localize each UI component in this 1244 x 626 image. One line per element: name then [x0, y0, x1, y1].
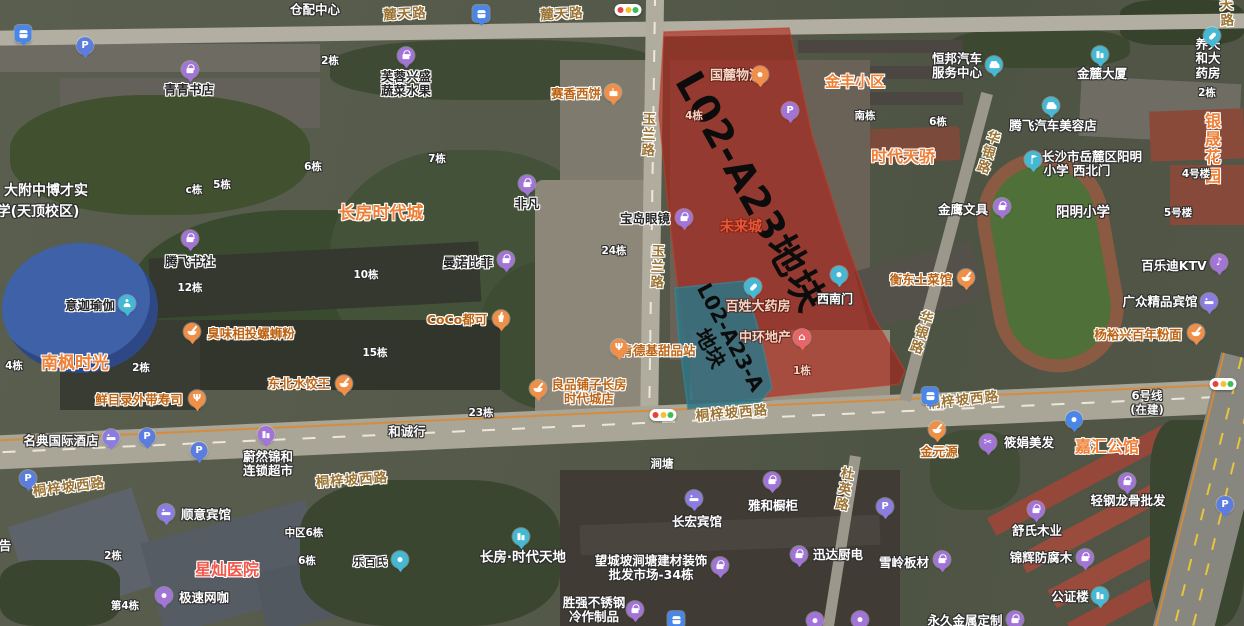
poi-label[interactable]: 望城坡涧塘建材装饰 批发市场-34栋 — [595, 554, 708, 583]
car-service-icon-glyph — [986, 56, 1003, 73]
building-icon-glyph — [1092, 587, 1109, 604]
ktv-mic-icon[interactable]: ♪ — [1211, 254, 1228, 271]
bakery-icon-glyph — [605, 84, 622, 101]
logistics-dot-icon[interactable] — [752, 66, 769, 83]
poi-label[interactable]: 肯德基甜品站 — [620, 344, 695, 358]
shopping-bag-icon[interactable] — [627, 601, 644, 618]
building-number-label: 2栋 — [321, 56, 339, 68]
poi-label[interactable]: 衡东土菜馆 — [890, 273, 953, 287]
poi-label[interactable]: 金元源 — [920, 445, 958, 459]
drink-dot-icon-glyph — [392, 551, 409, 568]
poi-label[interactable]: 筱娟美发 — [1004, 436, 1054, 450]
shopping-bag-icon[interactable] — [182, 230, 199, 247]
shopping-bag-icon[interactable] — [519, 175, 536, 192]
shopping-bag-icon[interactable] — [1119, 473, 1136, 490]
poi-label[interactable]: 杨裕兴百年粉面 — [1094, 328, 1182, 342]
road-label: 玉兰路 — [638, 111, 655, 158]
building-number-label: 5栋 — [213, 180, 231, 192]
poi-label[interactable]: 和诚行 — [388, 425, 426, 439]
building-number-label: c栋 — [186, 185, 203, 197]
bus-stop-icon-glyph — [15, 25, 32, 42]
poi-dot-icon-glyph — [807, 612, 824, 626]
restaurant-icon[interactable]: Ψ — [189, 390, 206, 407]
supermarket-icon[interactable] — [258, 426, 275, 443]
hospital-label[interactable]: 星灿医院 — [195, 561, 259, 579]
poi-label[interactable]: 小学 西北门 — [1044, 164, 1111, 178]
restaurant-icon[interactable] — [336, 375, 353, 392]
shopping-bag-icon-glyph — [712, 557, 729, 574]
road-label: 麓天路 — [1217, 0, 1236, 29]
bus-stop-icon-glyph — [922, 387, 939, 404]
supermarket-icon-glyph — [258, 426, 275, 443]
parking-icon-glyph: P — [139, 428, 156, 445]
hotel-bed-icon[interactable] — [686, 490, 703, 507]
shopping-bag-icon[interactable] — [182, 61, 199, 78]
shopping-bag-icon-glyph — [934, 551, 951, 568]
shopping-bag-icon-glyph — [676, 209, 693, 226]
parking-icon[interactable]: P — [191, 442, 208, 459]
poi-label[interactable]: 雅和橱柜 — [748, 499, 798, 513]
poi-label[interactable]: 百乐迪KTV — [1141, 259, 1206, 273]
pharmacy-pill-icon-glyph — [1204, 27, 1221, 44]
bus-stop-icon-glyph — [473, 5, 490, 22]
building-number-label: 中区6栋 — [285, 528, 324, 540]
estate-house-icon-glyph: ⌂ — [794, 329, 811, 346]
building-number-label: 4栋 — [5, 361, 23, 373]
parking-icon[interactable]: P — [877, 498, 894, 515]
shopping-bag-icon[interactable] — [1007, 611, 1024, 626]
building-number-label: 第4栋 — [111, 601, 139, 613]
restaurant-icon-glyph — [929, 421, 946, 438]
road-label: 玉兰路 — [647, 243, 664, 290]
shopping-bag-icon-glyph — [791, 546, 808, 563]
poi-label[interactable]: 东北水饺王 — [268, 377, 331, 391]
poi-label[interactable]: 阳明小学 — [1056, 205, 1110, 220]
building-number-label: 12栋 — [177, 283, 202, 295]
ktv-mic-icon-glyph: ♪ — [1211, 254, 1228, 271]
drink-dot-icon[interactable] — [392, 551, 409, 568]
poi-dot-icon-glyph — [852, 611, 869, 626]
satellite-map[interactable]: L02-A23地块 L02-A23-A地块 麓天路麓天路麓天路玉兰路玉兰路桐梓坡… — [0, 0, 1244, 626]
poi-label[interactable]: 顺意宾馆 — [181, 508, 231, 522]
parking-entrance-icon-glyph: P — [20, 470, 37, 487]
poi-label[interactable]: 西南门 — [817, 293, 853, 307]
shopping-bag-icon[interactable] — [676, 209, 693, 226]
poi-label[interactable]: 曼诺比菲 — [443, 256, 493, 270]
area-label[interactable]: 长房时代城 — [339, 204, 424, 223]
poi-label[interactable]: 宝岛眼镜 — [620, 212, 670, 226]
restaurant-icon[interactable] — [958, 269, 975, 286]
hotel-bed-icon-glyph — [1201, 293, 1218, 310]
restaurant-icon-glyph — [958, 269, 975, 286]
poi-label[interactable]: 蔚然锦和 连锁超市 — [243, 450, 293, 479]
area-label[interactable]: 时代天骄 — [871, 148, 935, 166]
bus-stop-icon[interactable] — [668, 611, 685, 626]
building-number-label: 南栋 — [855, 111, 876, 123]
shopping-bag-icon[interactable] — [712, 557, 729, 574]
hair-salon-icon-glyph: ✂ — [980, 434, 997, 451]
restaurant-icon[interactable] — [530, 380, 547, 397]
shopping-bag-icon[interactable] — [994, 198, 1011, 215]
shopping-bag-icon-glyph — [519, 175, 536, 192]
logistics-dot-icon-glyph — [752, 66, 769, 83]
area-label[interactable]: 南枫时光 — [41, 354, 109, 373]
poi-dot-icon[interactable] — [1066, 411, 1083, 428]
building-number-label: 5号楼 — [1164, 208, 1192, 220]
poi-label[interactable]: 赛香西饼 — [551, 87, 601, 101]
shopping-bag-icon-glyph — [1028, 501, 1045, 518]
project-label[interactable]: 未来城 — [720, 220, 762, 236]
poi-label[interactable]: 芙蓉兴盛 蔬菜水果 — [381, 70, 431, 99]
building-icon-glyph — [513, 528, 530, 545]
poi-label[interactable]: 大附中博才实 — [4, 184, 88, 200]
bus-stop-icon[interactable] — [473, 5, 490, 22]
shopping-bag-icon-glyph — [182, 61, 199, 78]
poi-label[interactable]: 学(天顶校区) — [0, 205, 79, 221]
poi-label[interactable]: 雪岭板材 — [879, 556, 929, 570]
internet-cafe-icon-glyph — [156, 587, 173, 604]
traffic-light-icon — [615, 4, 642, 16]
gate-dot-icon[interactable] — [831, 266, 848, 283]
building-number-label: (在建) — [1130, 403, 1164, 416]
building-number-label: 2栋 — [1198, 88, 1216, 100]
poi-label[interactable]: 锦辉防腐木 — [1010, 551, 1073, 565]
building-number-label: 6栋 — [298, 556, 316, 568]
area-label[interactable]: 金丰小区 — [825, 73, 885, 90]
restaurant-icon-glyph — [336, 375, 353, 392]
gate-dot-icon-glyph — [831, 266, 848, 283]
building-number-label: 10栋 — [353, 270, 378, 282]
shopping-bag-icon[interactable] — [934, 551, 951, 568]
building-icon[interactable] — [1092, 587, 1109, 604]
shopping-bag-icon-glyph — [764, 472, 781, 489]
poi-label[interactable]: 迅达厨电 — [813, 548, 863, 562]
poi-label[interactable]: 永久金属定制 — [927, 614, 1002, 626]
poi-label[interactable]: 恒邦汽车 服务中心 — [932, 52, 982, 81]
yoga-icon[interactable] — [119, 295, 136, 312]
drink-cup-icon[interactable] — [493, 310, 510, 327]
building-icon-glyph — [1092, 46, 1109, 63]
traffic-light-icon — [650, 409, 677, 421]
building-number-label: 23栋 — [468, 408, 493, 420]
poi-label[interactable]: 中环地产 — [739, 332, 791, 347]
poi-label[interactable]: 臭味相投螺蛳粉 — [207, 327, 295, 341]
road-label: 麓天路 — [540, 6, 584, 24]
shopping-bag-icon[interactable] — [1077, 549, 1094, 566]
school-flag-icon-glyph — [1025, 151, 1042, 168]
building-number-label: 1栋 — [793, 366, 811, 378]
building-icon[interactable] — [1092, 46, 1109, 63]
shopping-bag-icon-glyph — [398, 47, 415, 64]
parking-icon[interactable]: P — [1217, 496, 1234, 513]
hotel-bed-icon-glyph — [158, 504, 175, 521]
yoga-icon-glyph — [119, 295, 136, 312]
poi-label[interactable]: 乐百氏 — [353, 555, 388, 568]
poi-label[interactable]: 极速网咖 — [179, 591, 229, 605]
pharmacy-pill-icon-glyph — [745, 278, 762, 295]
building-number-label: 2栋 — [132, 363, 150, 375]
building-number-label: 7栋 — [428, 154, 446, 166]
building-number-label: 涧塘 — [651, 457, 674, 470]
parking-icon[interactable]: P — [139, 428, 156, 445]
poi-dot-icon[interactable] — [807, 612, 824, 626]
internet-cafe-icon[interactable] — [156, 587, 173, 604]
bakery-icon[interactable] — [605, 84, 622, 101]
shopping-bag-icon-glyph — [627, 601, 644, 618]
restaurant-icon-glyph — [1188, 324, 1205, 341]
building-icon[interactable] — [513, 528, 530, 545]
poi-label[interactable]: 长宏宾馆 — [672, 515, 722, 529]
area-label[interactable]: 嘉汇公馆 — [1075, 438, 1139, 456]
poi-label[interactable]: 仓配中心 — [290, 3, 340, 17]
poi-label[interactable]: 鲜目录外带寿司 — [95, 393, 183, 407]
poi-label[interactable]: 金鹰文具 — [938, 203, 988, 217]
restaurant-icon-glyph — [184, 323, 201, 340]
poi-label[interactable]: 意迦瑜伽 — [65, 299, 115, 313]
shopping-bag-icon[interactable] — [498, 251, 515, 268]
poi-dot-icon-glyph — [1066, 411, 1083, 428]
building-number-label: 6栋 — [929, 117, 947, 129]
hotel-bed-icon[interactable] — [1201, 293, 1218, 310]
hair-salon-icon[interactable]: ✂ — [980, 434, 997, 451]
poi-label[interactable]: 胜强不锈钢 冷作制品 — [563, 596, 626, 625]
poi-label[interactable]: 公证楼 — [1051, 590, 1089, 604]
restaurant-icon[interactable] — [1188, 324, 1205, 341]
shopping-bag-icon[interactable] — [398, 47, 415, 64]
poi-label[interactable]: 名典国际酒店 — [23, 434, 98, 448]
bus-stop-icon[interactable] — [15, 25, 32, 42]
parking-icon-glyph: P — [1217, 496, 1234, 513]
poi-label[interactable]: 舒氏木业 — [1012, 524, 1062, 538]
estate-house-icon[interactable]: ⌂ — [794, 329, 811, 346]
bus-stop-icon[interactable] — [922, 387, 939, 404]
restaurant-icon[interactable]: Ψ — [611, 339, 628, 356]
parking-icon[interactable]: P — [77, 37, 94, 54]
hotel-bed-icon[interactable] — [103, 429, 120, 446]
shopping-bag-icon[interactable] — [791, 546, 808, 563]
school-flag-icon[interactable] — [1025, 151, 1042, 168]
poi-dot-icon[interactable] — [852, 611, 869, 626]
car-service-icon[interactable] — [986, 56, 1003, 73]
parking-icon-glyph: P — [77, 37, 94, 54]
building-number-label: 2栋 — [104, 551, 122, 563]
building-number-label: 6号线 — [1131, 389, 1162, 402]
shopping-bag-icon-glyph — [1119, 473, 1136, 490]
building-number-label: 4号楼 — [1182, 169, 1210, 181]
restaurant-icon-glyph: Ψ — [611, 339, 628, 356]
poi-label[interactable]: 良品铺子长房 时代城店 — [551, 378, 626, 407]
drink-cup-icon-glyph — [493, 310, 510, 327]
restaurant-icon-glyph: Ψ — [189, 390, 206, 407]
shopping-bag-icon-glyph — [182, 230, 199, 247]
shopping-bag-icon-glyph — [994, 198, 1011, 215]
poi-label[interactable]: 广众精品宾馆 — [1122, 295, 1197, 309]
poi-label[interactable]: 腾飞书社 — [165, 255, 215, 269]
shopping-bag-icon[interactable] — [764, 472, 781, 489]
poi-label[interactable]: 告 — [0, 539, 11, 553]
hotel-bed-icon-glyph — [103, 429, 120, 446]
hotel-bed-icon[interactable] — [158, 504, 175, 521]
road-label: 麓天路 — [383, 6, 427, 24]
pharmacy-pill-icon[interactable] — [745, 278, 762, 295]
poi-label[interactable]: CoCo都可 — [427, 313, 488, 327]
poi-label[interactable]: 百姓大药房 — [725, 301, 790, 316]
building-number-label: 24栋 — [601, 246, 626, 258]
building-number-label: 6栋 — [304, 162, 322, 174]
building-number-label: 15栋 — [362, 348, 387, 360]
traffic-light-icon — [1210, 378, 1237, 390]
parking-icon-glyph: P — [782, 102, 799, 119]
shopping-bag-icon-glyph — [1077, 549, 1094, 566]
car-service-icon[interactable] — [1043, 97, 1060, 114]
parking-icon-glyph: P — [191, 442, 208, 459]
shopping-bag-icon[interactable] — [1028, 501, 1045, 518]
parking-icon[interactable]: P — [782, 102, 799, 119]
car-service-icon-glyph — [1043, 97, 1060, 114]
restaurant-icon[interactable] — [929, 421, 946, 438]
shopping-bag-icon-glyph — [498, 251, 515, 268]
shopping-bag-icon-glyph — [1007, 611, 1024, 626]
hotel-bed-icon-glyph — [686, 490, 703, 507]
pharmacy-pill-icon[interactable] — [1204, 27, 1221, 44]
restaurant-icon-glyph — [530, 380, 547, 397]
parking-entrance-icon[interactable]: P — [20, 470, 37, 487]
building-number-label: 4栋 — [685, 111, 703, 123]
restaurant-icon[interactable] — [184, 323, 201, 340]
bus-stop-icon-glyph — [668, 611, 685, 626]
parking-icon-glyph: P — [877, 498, 894, 515]
